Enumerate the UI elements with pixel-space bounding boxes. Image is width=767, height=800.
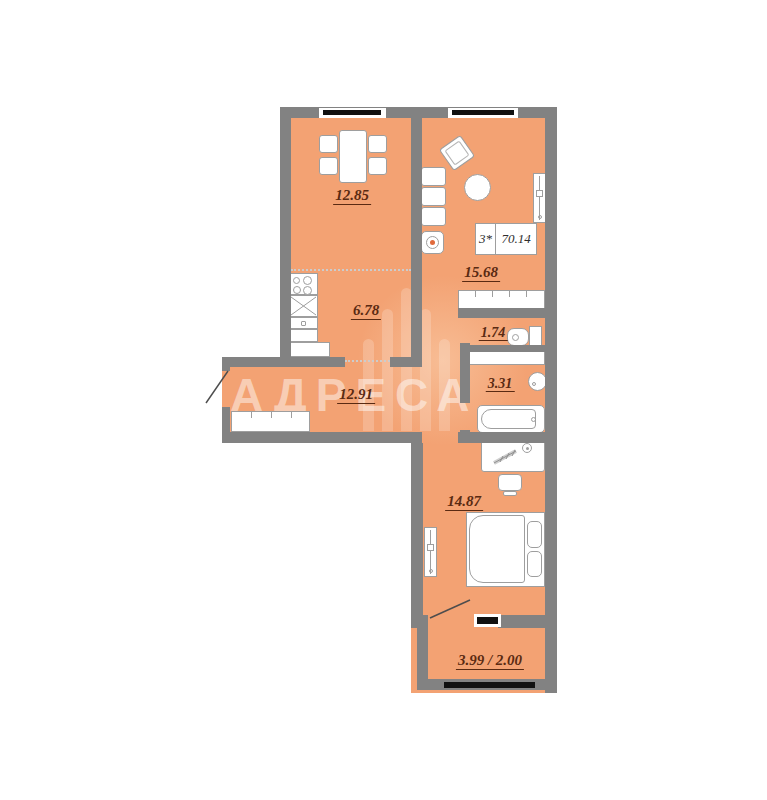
- pen-icon: [494, 450, 516, 463]
- room-label-balcony: 3.99 / 2.00: [456, 652, 524, 670]
- floorplan-canvas: АДРЕСА: [0, 0, 767, 800]
- room-label-kitchen: 6.78: [351, 302, 381, 320]
- balcony-door-swing: [430, 600, 470, 618]
- line-overlay: [0, 0, 767, 800]
- room-label-living: 15.68: [462, 264, 500, 282]
- room-label-dining: 12.85: [333, 187, 371, 205]
- room-label-hallway: 12.91: [337, 386, 375, 404]
- entrance-door-swing: [206, 371, 228, 403]
- room-label-wc: 1.74: [479, 325, 508, 341]
- unit-total-area: 70.14: [496, 224, 536, 254]
- unit-info-box: 3* 70.14: [475, 223, 537, 255]
- room-label-bathroom: 3.31: [486, 376, 515, 392]
- unit-type: 3*: [476, 224, 496, 254]
- room-label-bedroom: 14.87: [445, 493, 483, 511]
